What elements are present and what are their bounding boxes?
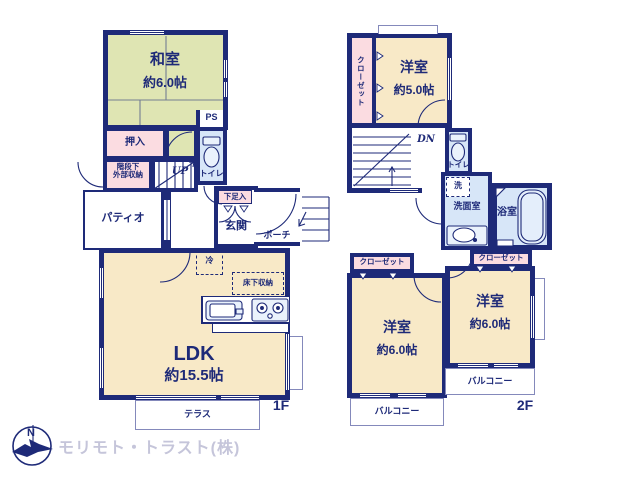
room6-left-size: 約6.0帖 <box>357 344 437 357</box>
closet-right-label: クローゼット <box>470 254 532 262</box>
bay-window-ldk <box>290 336 303 390</box>
window <box>163 200 171 240</box>
washroom-label: 洗面室 <box>444 201 490 211</box>
window <box>390 188 418 193</box>
company-name: モリモト・トラスト(株) <box>58 440 258 458</box>
bay-window-room6 <box>535 278 545 340</box>
kitchen-counter-lip <box>212 324 289 333</box>
toilet-1f-label: トイレ <box>196 170 227 179</box>
patio-label: パティオ <box>83 212 163 224</box>
window-bump <box>378 25 438 34</box>
shoe-box-label: 下足入 <box>218 193 252 201</box>
genkan-label: 玄関 <box>214 220 258 232</box>
floor1-label: 1F <box>264 398 298 414</box>
window <box>130 30 164 35</box>
closet-left-label: クローゼット <box>350 258 414 266</box>
window <box>99 348 104 388</box>
balcony-left-label: バルコニー <box>350 406 444 416</box>
closet-top-label: クローゼット <box>356 46 364 116</box>
oshiire-label: 押入 <box>107 137 163 148</box>
window <box>99 268 104 298</box>
dn-label: DN <box>410 134 442 145</box>
window <box>223 82 228 97</box>
stair-left-wall <box>347 128 352 193</box>
fridge-label: 冷 <box>196 257 223 266</box>
washitsu-name: 和室 <box>125 52 205 69</box>
window <box>223 60 228 78</box>
toilet-2f-label: トイレ <box>445 161 472 169</box>
compass-icon <box>12 425 53 465</box>
floor2-label: 2F <box>508 398 542 414</box>
balcony-right-label: バルコニー <box>445 376 535 386</box>
room5-name: 洋室 <box>381 60 447 76</box>
ldk-size: 約15.5帖 <box>144 368 244 385</box>
compass-n: N <box>27 427 35 439</box>
up-label: UP <box>162 166 198 177</box>
washer-label: 洗 <box>446 182 470 191</box>
bath-label: 浴室 <box>494 207 520 218</box>
room6-right-name: 洋室 <box>450 294 530 310</box>
floorplan-canvas: 和室 約6.0帖 押入 PS トイレ 階段下 外部収納 UP パティオ 下足入 … <box>0 0 640 480</box>
stairs-2f-treads <box>353 134 411 186</box>
ldk-name: LDK <box>154 343 234 365</box>
window <box>447 58 452 100</box>
porch-label: ポーチ <box>254 230 300 240</box>
washitsu-size: 約6.0帖 <box>125 76 205 91</box>
room5-size: 約5.0帖 <box>381 84 447 97</box>
room6-left-name: 洋室 <box>357 320 437 336</box>
room6-right-size: 約6.0帖 <box>450 318 530 331</box>
porch-steps <box>299 197 329 241</box>
underfloor-label: 床下収納 <box>232 279 284 287</box>
terrace-label: テラス <box>135 409 260 419</box>
under-stairs-label: 階段下 外部収納 <box>104 163 152 180</box>
ps-label: PS <box>196 112 227 122</box>
kitchen-counter <box>201 296 289 324</box>
washitsu-entry-cell <box>165 127 198 160</box>
